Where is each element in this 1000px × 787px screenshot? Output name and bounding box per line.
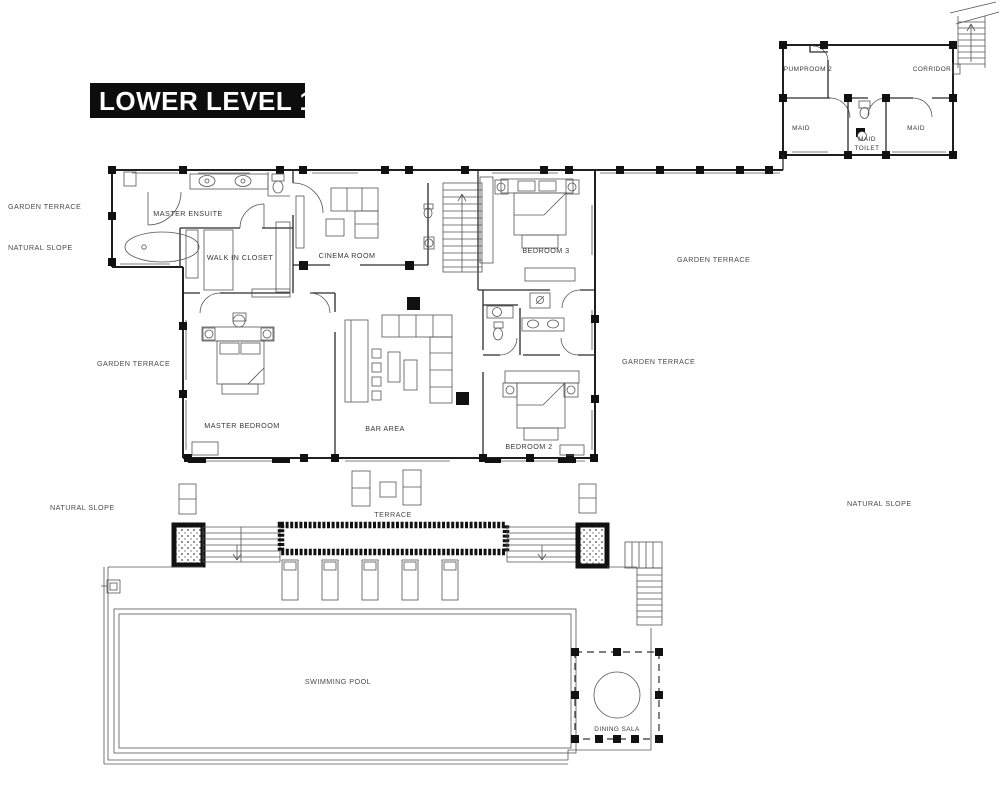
terrace-chair-icon bbox=[579, 484, 596, 513]
stairs-icon bbox=[625, 542, 662, 625]
page-title: LOWER LEVEL 1 bbox=[99, 86, 315, 116]
swimming-pool: SWIMMING POOL bbox=[114, 609, 576, 753]
label-cinema-room: CINEMA ROOM bbox=[319, 251, 376, 260]
planted-strip-icon bbox=[281, 525, 506, 552]
connecting-wall bbox=[595, 166, 783, 174]
label-garden-terrace-e-lower: GARDEN TERRACE bbox=[622, 357, 695, 366]
bedroom-3: BEDROOM 3 bbox=[480, 177, 579, 281]
floor-plan-page: LOWER LEVEL 1 bbox=[0, 0, 1000, 787]
master-bedroom: MASTER BEDROOM bbox=[192, 289, 290, 455]
label-maid-toilet-2: TOILET bbox=[855, 145, 880, 152]
bed-icon bbox=[503, 371, 579, 440]
wardrobe-icon bbox=[276, 222, 290, 292]
steps-icon bbox=[507, 527, 577, 562]
walk-in-closet: WALK IN CLOSET bbox=[186, 222, 290, 292]
terrace-chair-icon bbox=[179, 484, 196, 514]
pool-lounger-icon bbox=[362, 560, 378, 600]
terrace-chair-icon bbox=[403, 470, 421, 505]
toilet-icon bbox=[268, 172, 290, 196]
label-garden-terrace-e-upper: GARDEN TERRACE bbox=[677, 255, 750, 264]
terrace-table-icon bbox=[380, 482, 396, 497]
bar-area: BAR AREA bbox=[345, 315, 452, 433]
label-bar-area: BAR AREA bbox=[365, 424, 405, 433]
label-natural-slope-sw: NATURAL SLOPE bbox=[50, 503, 115, 512]
dining-sala: DINING SALA bbox=[571, 648, 663, 743]
sink-icon bbox=[424, 237, 434, 249]
label-maid-left: MAID bbox=[792, 125, 810, 132]
label-garden-terrace-w: GARDEN TERRACE bbox=[97, 359, 170, 368]
bedroom-2: BEDROOM 2 bbox=[503, 371, 584, 455]
site-labels: GARDEN TERRACE NATURAL SLOPE GARDEN TERR… bbox=[8, 202, 912, 512]
window-marker bbox=[124, 172, 136, 186]
label-garden-terrace-nw: GARDEN TERRACE bbox=[8, 202, 81, 211]
label-swimming-pool: SWIMMING POOL bbox=[305, 677, 371, 686]
bathroom bbox=[487, 293, 564, 340]
label-natural-slope-se: NATURAL SLOPE bbox=[847, 499, 912, 508]
master-ensuite: MASTER ENSUITE bbox=[124, 172, 290, 262]
label-pumproom2: PUMPROOM 2 bbox=[784, 66, 832, 73]
stairs-icon bbox=[950, 2, 999, 74]
label-terrace: TERRACE bbox=[374, 510, 412, 519]
label-walk-in-closet: WALK IN CLOSET bbox=[207, 253, 274, 262]
pool-lounger-icon bbox=[402, 560, 418, 600]
label-maid-toilet-1: MAID bbox=[858, 136, 876, 143]
pool-lounger-icon bbox=[322, 560, 338, 600]
toilet-icon bbox=[494, 322, 504, 340]
pool-lounger-icon bbox=[282, 560, 298, 600]
label-master-ensuite: MASTER ENSUITE bbox=[153, 209, 222, 218]
screen-icon bbox=[296, 196, 304, 248]
sofa-icon bbox=[326, 188, 378, 238]
wardrobe-icon bbox=[186, 230, 198, 278]
sink-icon bbox=[487, 306, 513, 318]
bar-counter-icon bbox=[345, 320, 381, 402]
rug-icon bbox=[560, 445, 584, 455]
toilet-icon bbox=[859, 101, 870, 119]
label-master-bedroom: MASTER BEDROOM bbox=[204, 421, 279, 430]
vanity-sinks-icon bbox=[522, 318, 564, 331]
label-bedroom3: BEDROOM 3 bbox=[522, 246, 569, 255]
terrace-chair-icon bbox=[352, 471, 370, 506]
pool-deck: SWIMMING POOL bbox=[101, 525, 651, 764]
planter-icon bbox=[578, 525, 607, 566]
maid-quarters: PUMPROOM 2 CORRIDOR MAID MAID TOILET MAI… bbox=[779, 2, 999, 170]
label-corridor: CORRIDOR bbox=[913, 66, 951, 73]
label-bedroom2: BEDROOM 2 bbox=[505, 442, 552, 451]
cinema-room: CINEMA ROOM bbox=[296, 188, 378, 260]
label-dining-sala: DINING SALA bbox=[594, 726, 640, 733]
dining-table-icon bbox=[594, 672, 640, 718]
rug-icon bbox=[192, 442, 218, 455]
steps-icon bbox=[203, 527, 280, 562]
label-maid-right: MAID bbox=[907, 125, 925, 132]
label-natural-slope-nw: NATURAL SLOPE bbox=[8, 243, 73, 252]
rug-icon bbox=[525, 268, 575, 281]
terrace: TERRACE bbox=[179, 470, 596, 519]
bed-icon bbox=[202, 313, 274, 394]
pool-lounger-icon bbox=[442, 560, 458, 600]
stairs-icon bbox=[443, 183, 482, 272]
shower-icon bbox=[530, 293, 550, 308]
vanity-sinks-icon bbox=[190, 174, 268, 189]
bed-icon bbox=[495, 179, 579, 248]
plan-title: LOWER LEVEL 1 bbox=[90, 83, 315, 118]
floor-plan-drawing: LOWER LEVEL 1 bbox=[0, 0, 1000, 787]
stair-hall bbox=[424, 183, 482, 272]
bathtub-icon bbox=[125, 232, 199, 262]
garden-stairs bbox=[625, 542, 662, 625]
bar-shelf-icon bbox=[382, 315, 452, 403]
planter-icon bbox=[174, 525, 203, 565]
